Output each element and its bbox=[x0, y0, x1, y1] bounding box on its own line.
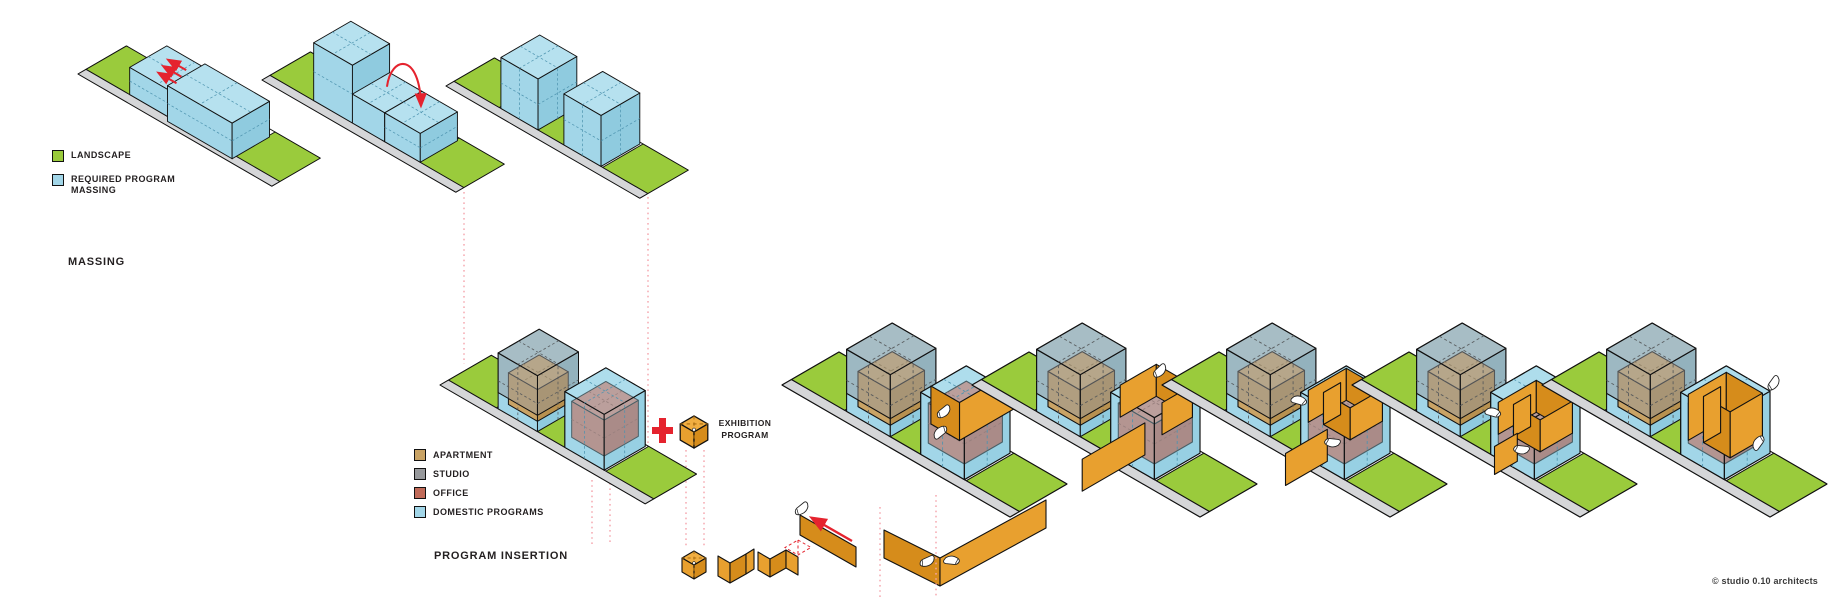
landscape-swatch bbox=[52, 150, 64, 162]
legend-label: STUDIO bbox=[433, 469, 470, 480]
diagram-canvas: LANDSCAPE REQUIRED PROGRAM MASSING MASSI… bbox=[0, 0, 1845, 600]
plus-icon bbox=[652, 418, 673, 443]
legend-label: REQUIRED PROGRAM MASSING bbox=[71, 174, 183, 197]
diagram-art bbox=[0, 0, 1845, 600]
massing-swatch bbox=[52, 174, 64, 186]
legend-label: LANDSCAPE bbox=[71, 150, 131, 161]
office-swatch bbox=[414, 487, 426, 499]
massing-section-title: MASSING bbox=[68, 256, 125, 268]
legend-label: OFFICE bbox=[433, 488, 469, 499]
domestic-swatch bbox=[414, 506, 426, 518]
exhibition-label-line1: EXHIBITION bbox=[710, 418, 780, 429]
apartment-swatch bbox=[414, 449, 426, 461]
unfold-step-1 bbox=[682, 551, 706, 579]
unfold-step-2 bbox=[718, 549, 754, 583]
program-insertion-diagram bbox=[440, 329, 697, 504]
program-section-title: PROGRAM INSERTION bbox=[434, 550, 568, 562]
exhibition-cube-icon bbox=[680, 416, 708, 448]
unfold-step-5 bbox=[884, 500, 1046, 586]
studio-swatch bbox=[414, 468, 426, 480]
unfold-step-4 bbox=[793, 501, 856, 567]
exhibition-label-line2: PROGRAM bbox=[710, 430, 780, 441]
copyright-credit: © studio 0.10 architects bbox=[1712, 576, 1818, 586]
legend-label: APARTMENT bbox=[433, 450, 493, 461]
legend-label: DOMESTIC PROGRAMS bbox=[433, 507, 544, 518]
unfold-step-3 bbox=[758, 540, 811, 577]
